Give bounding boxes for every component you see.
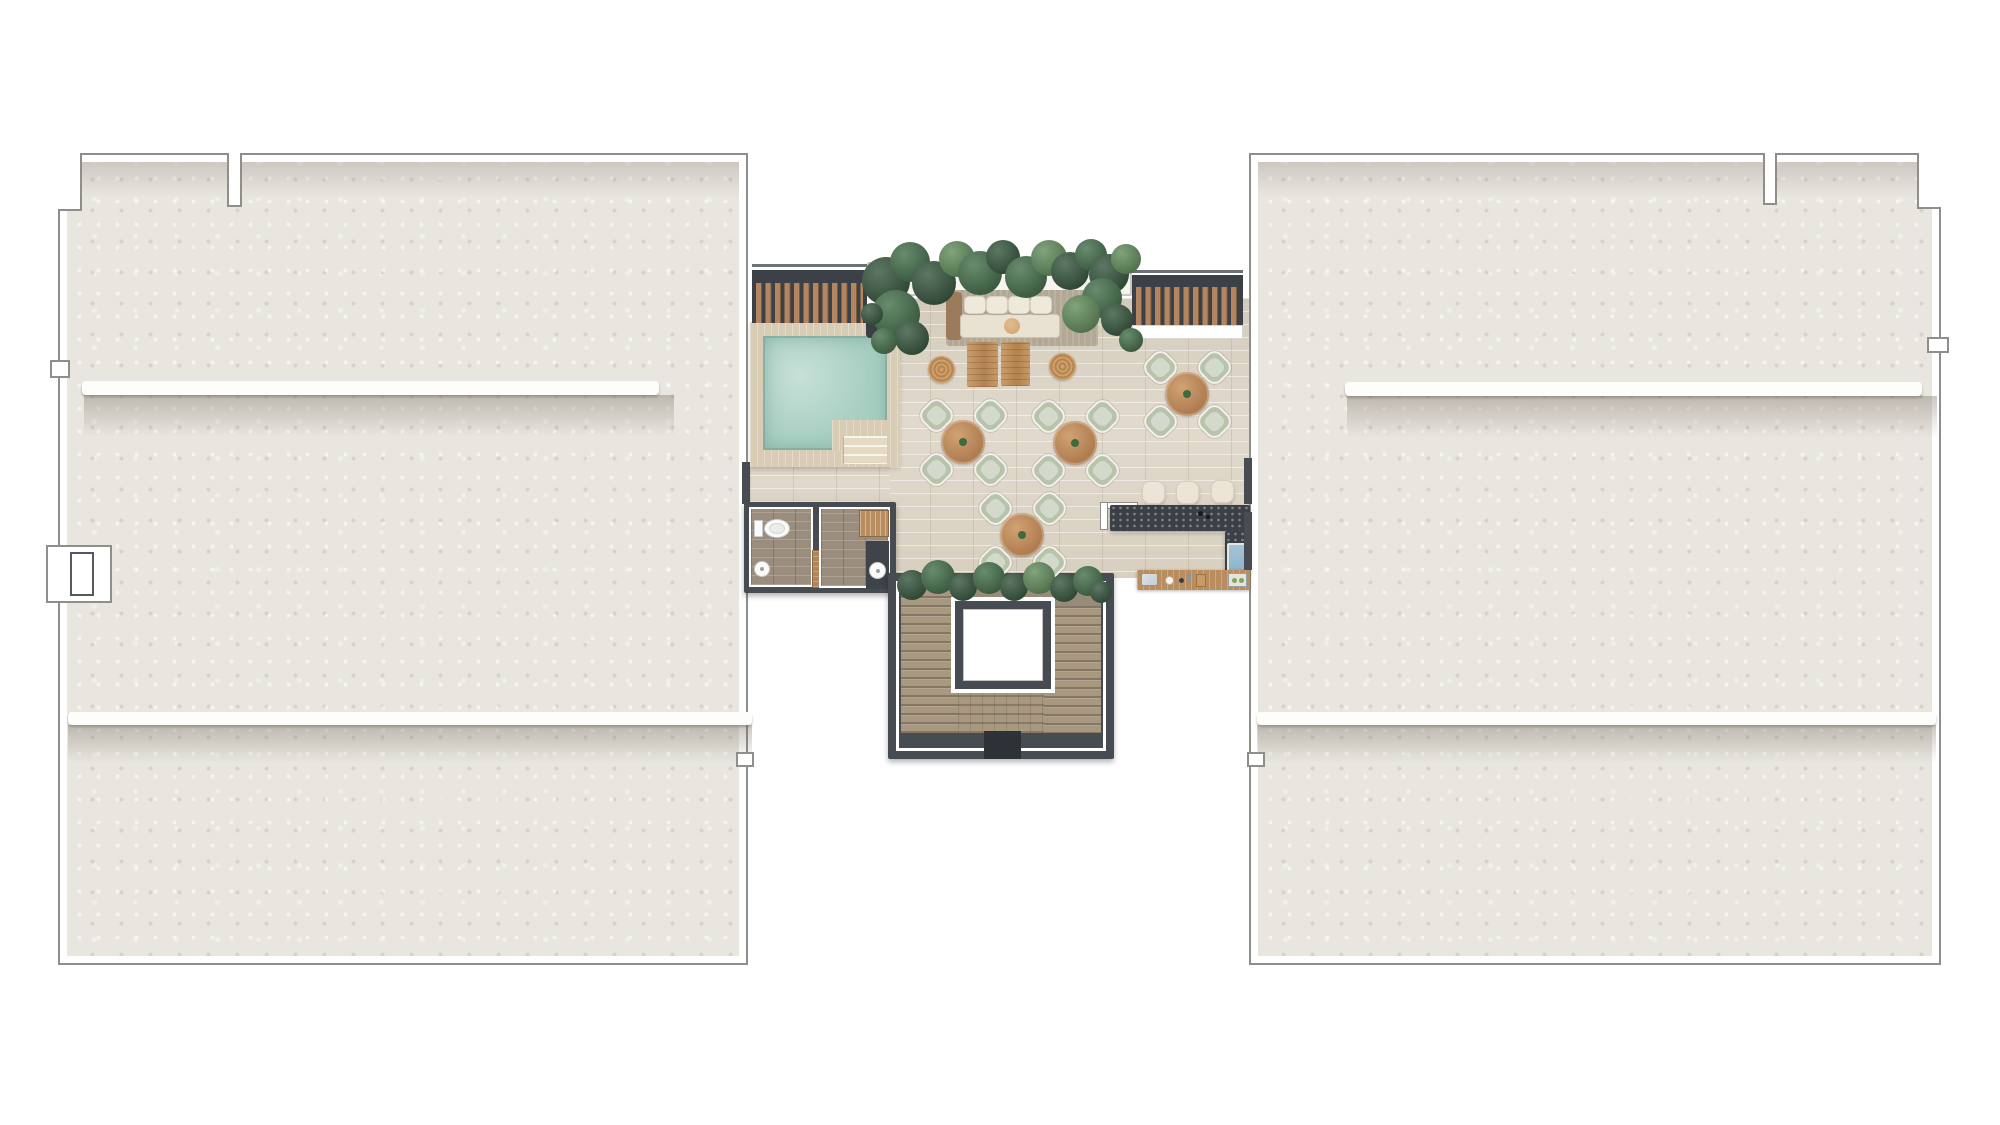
bar-tap-small — [1206, 515, 1210, 519]
right-edge-wall-segment-a — [1244, 458, 1252, 504]
right-roof-edge-tab — [1927, 337, 1949, 353]
toilet-tank — [754, 520, 763, 537]
pergola-right — [1132, 275, 1243, 325]
dining-table-centerpiece — [959, 438, 967, 446]
left-roof-top-shade — [67, 162, 739, 198]
dining-chair-pad — [1037, 496, 1061, 520]
back-counter-faucet — [1188, 573, 1191, 582]
dining-table — [1165, 372, 1209, 416]
toilet-seat — [769, 523, 785, 534]
bar-stool — [1143, 482, 1164, 503]
foliage-plant — [1062, 295, 1100, 333]
foliage-plant — [871, 328, 897, 354]
pool-steps — [843, 436, 887, 464]
left-upper-band-shadow — [84, 395, 674, 437]
right-roof-corner-step — [1917, 153, 1941, 209]
pergola-right-beam — [1132, 275, 1243, 287]
left-roof-corner-step — [58, 153, 82, 211]
dining-chair-pad — [1148, 355, 1172, 379]
bar-wall-side — [1100, 502, 1108, 530]
left-lower-band-shadow — [68, 725, 752, 763]
vanity-basin — [869, 562, 886, 579]
left-upper-parapet-band — [82, 381, 659, 395]
foliage-plant — [1119, 328, 1143, 352]
wc-sink — [754, 561, 770, 577]
dining-chair-pad — [1036, 404, 1060, 428]
right-lower-band-shadow — [1257, 725, 1936, 763]
left-roof-access-hatch — [70, 552, 94, 596]
foliage-plant — [895, 321, 929, 355]
stair-flight-left — [901, 587, 958, 733]
pergola-left-beam — [752, 270, 867, 283]
back-counter-kettle — [1179, 578, 1184, 583]
terrace-tile-strip-below-pool — [750, 462, 890, 506]
right-edge-wall-segment-b — [1244, 512, 1252, 570]
elevator-cab — [963, 609, 1043, 681]
dining-chair-pad — [1148, 409, 1172, 433]
left-roof-access-box — [46, 545, 112, 603]
sofa-cushion — [1008, 296, 1030, 314]
right-roof-top-shade — [1258, 162, 1932, 198]
stair-flight-lower — [958, 686, 1044, 733]
vanity-basin-drain — [876, 569, 880, 573]
right-roof-top-slot — [1763, 153, 1777, 205]
back-counter-board — [1196, 574, 1206, 587]
dining-table-centerpiece — [1018, 531, 1026, 539]
stair-door-opening — [984, 731, 1021, 759]
foliage-plant — [1111, 244, 1141, 274]
back-counter-plate — [1165, 576, 1174, 585]
bar-stool — [1177, 482, 1198, 503]
sofa-cushion — [986, 296, 1008, 314]
toilet-bowl — [764, 519, 790, 538]
dining-chair-pad — [1202, 355, 1226, 379]
bar-stool — [1212, 481, 1233, 502]
wood-table-left — [967, 342, 998, 387]
stair-core-block — [888, 573, 1114, 759]
left-roof-bottom-tab — [736, 752, 754, 767]
rattan-side-table — [928, 356, 955, 383]
left-roof-slab — [58, 153, 748, 965]
sofa-tray-bowl — [1004, 318, 1020, 334]
dining-table-centerpiece — [1071, 439, 1079, 447]
dining-chair-pad — [924, 457, 948, 481]
pergola-left — [752, 270, 867, 323]
pergola-left-slats — [756, 283, 863, 323]
left-roof-top-slot — [227, 153, 242, 207]
right-upper-band-shadow — [1347, 396, 1937, 438]
dining-chair-pad — [1090, 404, 1114, 428]
right-upper-parapet-band — [1345, 382, 1922, 396]
coffee-machine-dot2 — [1239, 578, 1244, 583]
bar-tap — [1198, 511, 1203, 516]
wc-sink-drain — [760, 567, 764, 571]
foliage-plant — [1090, 581, 1112, 603]
rattan-side-table — [1049, 353, 1076, 380]
bathroom-block — [744, 502, 896, 593]
vanity-bench — [859, 510, 889, 537]
right-roof-texture — [1258, 162, 1932, 956]
right-roof-slab — [1249, 153, 1941, 965]
coffee-machine-dot1 — [1232, 578, 1237, 583]
dining-chair-pad — [978, 403, 1002, 427]
left-roof-texture — [67, 162, 739, 956]
dining-table — [1053, 421, 1097, 465]
dining-table — [1000, 513, 1044, 557]
foliage-plant — [861, 303, 883, 325]
dining-chair-pad — [978, 457, 1002, 481]
dining-table — [941, 420, 985, 464]
left-roof-edge-tab — [50, 360, 70, 378]
dining-chair-pad — [1090, 458, 1114, 482]
left-edge-wall-segment — [742, 462, 750, 504]
dining-chair-pad — [1036, 458, 1060, 482]
sofa-cushion — [1030, 296, 1052, 314]
back-counter-sink — [1141, 573, 1158, 586]
bar-counter — [1110, 505, 1250, 531]
right-roof-bottom-tab — [1247, 752, 1265, 767]
vanity-room — [819, 507, 890, 588]
dining-chair-pad — [924, 403, 948, 427]
dining-table-centerpiece — [1183, 390, 1191, 398]
dining-chair-pad — [1202, 409, 1226, 433]
left-lower-parapet-band — [68, 712, 752, 725]
wc-room — [749, 507, 813, 587]
pergola-right-white-ledge — [1132, 325, 1243, 339]
coffee-machine — [1228, 573, 1247, 587]
terrace-top-edge-right — [1132, 270, 1243, 273]
pergola-right-slats — [1136, 287, 1239, 325]
dining-chair-pad — [983, 496, 1007, 520]
wood-table-right — [1001, 342, 1030, 386]
right-lower-parapet-band — [1257, 712, 1936, 725]
floor-plan-canvas — [0, 0, 2000, 1125]
sofa-cushion — [964, 296, 986, 314]
